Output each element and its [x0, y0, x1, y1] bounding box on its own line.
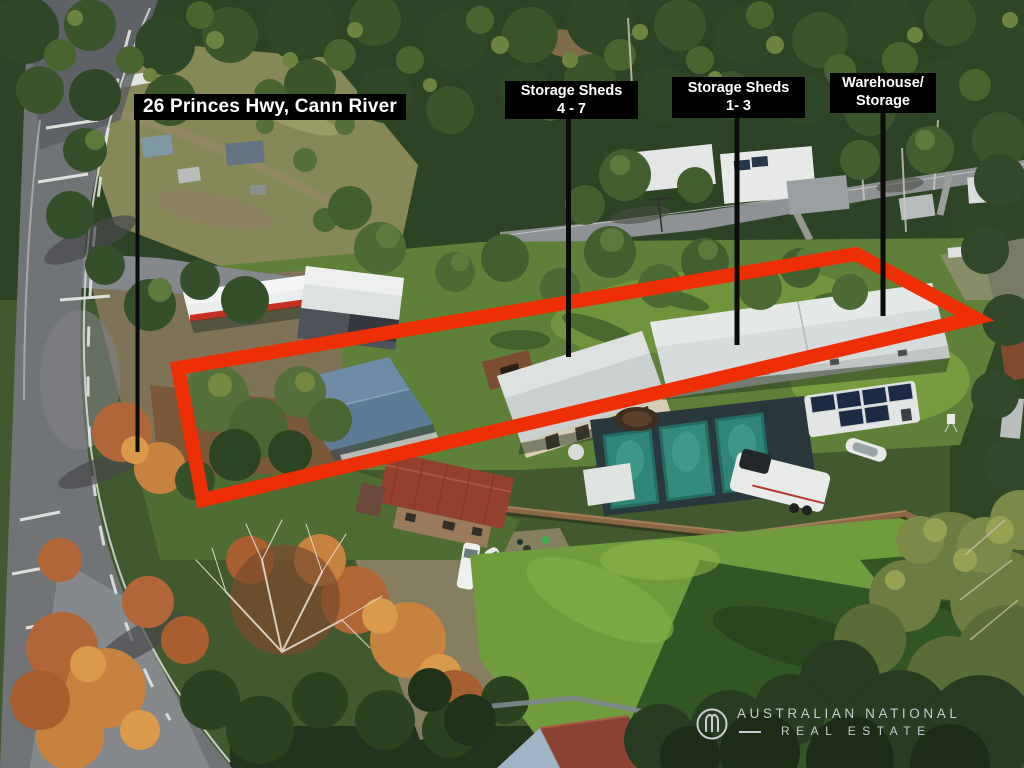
warehouse-storage-line2: Storage — [830, 93, 936, 111]
storage-sheds-4-7-label: Storage Sheds 4 - 7 — [505, 81, 638, 119]
agency-tagline: REAL ESTATE — [781, 724, 932, 738]
agency-logo-icon — [695, 702, 733, 746]
warehouse-storage-label: Warehouse/ Storage — [830, 73, 936, 113]
storage-sheds-1-3-line1: Storage Sheds — [672, 80, 805, 98]
agency-logo: AUSTRALIAN NATIONAL REAL ESTATE — [695, 700, 995, 750]
logo-dash — [739, 731, 761, 733]
storage-sheds-1-3-line2: 1- 3 — [672, 98, 805, 116]
warehouse-storage-line1: Warehouse/ — [830, 75, 936, 93]
address-label: 26 Princes Hwy, Cann River — [134, 94, 406, 120]
address-label-text: 26 Princes Hwy, Cann River — [143, 96, 397, 117]
listing-photo: 26 Princes Hwy, Cann River Storage Sheds… — [0, 0, 1024, 768]
storage-sheds-4-7-line1: Storage Sheds — [505, 83, 638, 101]
agency-name: AUSTRALIAN NATIONAL — [737, 706, 960, 721]
storage-sheds-1-3-label: Storage Sheds 1- 3 — [672, 77, 805, 118]
storage-sheds-4-7-line2: 4 - 7 — [505, 101, 638, 119]
